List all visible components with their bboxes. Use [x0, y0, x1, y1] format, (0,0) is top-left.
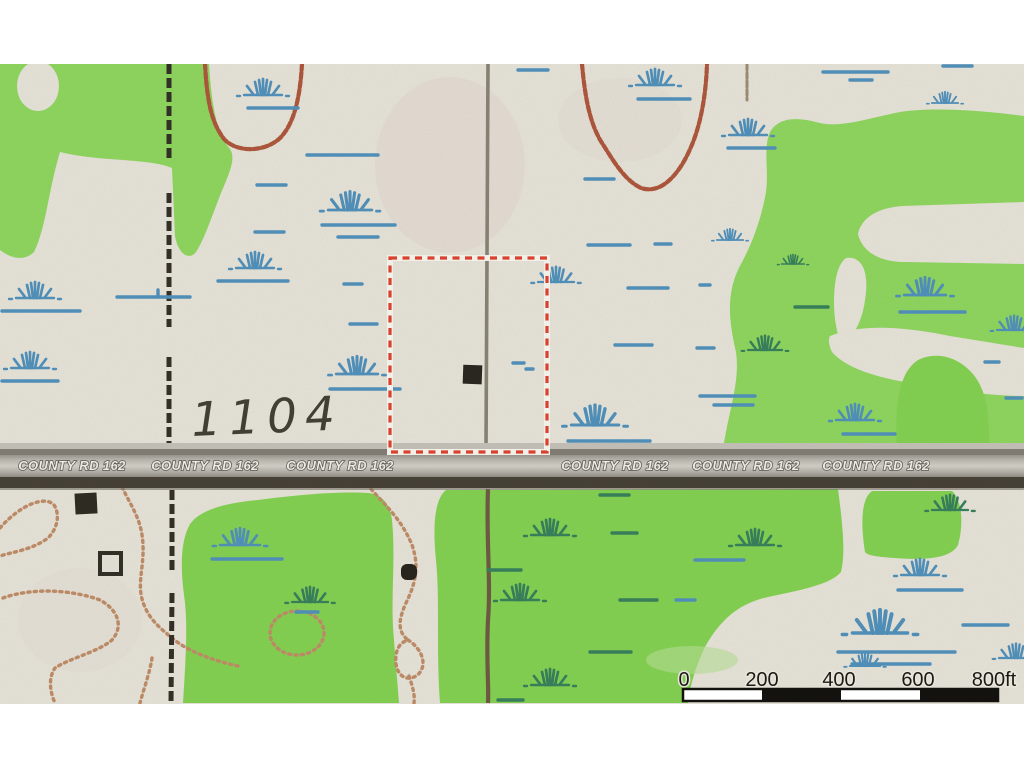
topo-map-screenshot: COUNTY RD 162 COUNTY RD 162 COUNTY RD 16…: [0, 0, 1024, 768]
topo-map-image: COUNTY RD 162 COUNTY RD 162 COUNTY RD 16…: [0, 0, 1024, 768]
scale-label: 0: [678, 669, 689, 691]
scan-noise-overlay: [0, 64, 1024, 704]
scale-label: 400: [822, 669, 855, 691]
scale-bar-segment: [920, 689, 998, 701]
scale-label: 600: [901, 669, 934, 691]
scale-bar-segment: [762, 689, 841, 701]
scale-label: 200: [745, 669, 778, 691]
scale-label: 800ft: [972, 669, 1017, 691]
